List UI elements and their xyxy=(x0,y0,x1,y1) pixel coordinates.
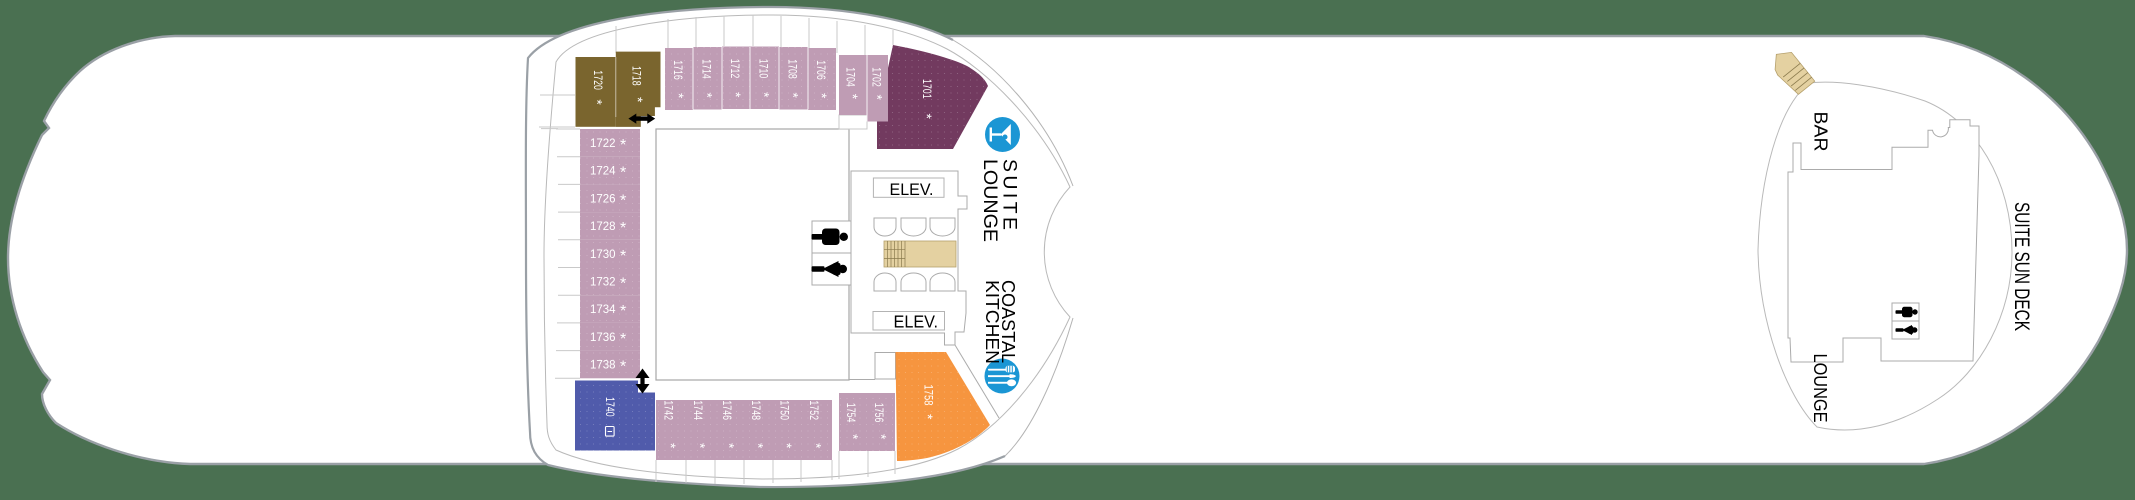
svg-text:1736: 1736 xyxy=(590,332,616,344)
svg-text:ELEV.: ELEV. xyxy=(894,312,939,332)
svg-text:*: * xyxy=(620,303,626,320)
svg-text:1706: 1706 xyxy=(814,60,826,80)
svg-text:*: * xyxy=(700,93,716,99)
svg-text:1742: 1742 xyxy=(661,400,673,420)
svg-text:1746: 1746 xyxy=(720,400,732,420)
svg-text:1710: 1710 xyxy=(756,59,768,79)
svg-text:1750: 1750 xyxy=(777,400,789,420)
svg-text:LOUNGE: LOUNGE xyxy=(1810,354,1830,423)
svg-text:1730: 1730 xyxy=(590,249,616,261)
svg-text:1738: 1738 xyxy=(590,360,616,372)
svg-text:1722: 1722 xyxy=(590,138,616,150)
svg-text:*: * xyxy=(845,94,861,100)
svg-text:*: * xyxy=(620,359,626,376)
svg-text:*: * xyxy=(919,114,935,120)
svg-text:*: * xyxy=(620,331,626,348)
svg-text:1704: 1704 xyxy=(843,67,855,87)
svg-text:1734: 1734 xyxy=(590,304,616,316)
svg-text:*: * xyxy=(786,93,802,99)
svg-text:1701: 1701 xyxy=(920,79,932,99)
svg-text:*: * xyxy=(620,276,626,293)
svg-text:1724: 1724 xyxy=(590,166,616,178)
svg-text:*: * xyxy=(920,414,936,420)
svg-text:*: * xyxy=(779,443,795,449)
svg-text:1756: 1756 xyxy=(872,403,884,423)
svg-text:1726: 1726 xyxy=(590,193,616,205)
svg-text:*: * xyxy=(671,93,687,99)
svg-text:*: * xyxy=(693,443,709,449)
svg-text:1752: 1752 xyxy=(807,400,819,420)
svg-text:1720: 1720 xyxy=(591,70,603,90)
svg-text:ELEV.: ELEV. xyxy=(890,181,934,199)
svg-text:1718: 1718 xyxy=(629,66,641,86)
svg-text:*: * xyxy=(620,248,626,265)
svg-text:1712: 1712 xyxy=(728,59,740,79)
svg-text:1708: 1708 xyxy=(785,59,797,79)
svg-text:1714: 1714 xyxy=(699,59,711,79)
svg-text:1748: 1748 xyxy=(749,400,761,420)
svg-text:*: * xyxy=(757,92,773,98)
svg-text:*: * xyxy=(728,92,744,98)
svg-text:*: * xyxy=(809,443,825,449)
svg-text:*: * xyxy=(722,443,738,449)
svg-text:1716: 1716 xyxy=(671,60,683,80)
svg-text:KITCHEN: KITCHEN xyxy=(982,280,1002,364)
svg-text:1754: 1754 xyxy=(844,403,856,423)
svg-text:*: * xyxy=(620,137,626,154)
svg-text:*: * xyxy=(870,95,886,101)
svg-text:1728: 1728 xyxy=(590,221,616,233)
svg-text:SUITE SUN DECK: SUITE SUN DECK xyxy=(2010,202,2033,331)
svg-text:*: * xyxy=(620,192,626,209)
svg-text:1740: 1740 xyxy=(603,397,615,417)
svg-text:*: * xyxy=(846,434,862,440)
svg-text:1702: 1702 xyxy=(869,67,881,87)
svg-text:LOUNGE: LOUNGE xyxy=(979,159,1001,242)
svg-text:*: * xyxy=(630,97,646,103)
svg-text:1744: 1744 xyxy=(691,400,703,420)
svg-text:*: * xyxy=(751,443,767,449)
svg-text:BAR: BAR xyxy=(1811,112,1831,152)
svg-text:*: * xyxy=(590,99,606,105)
svg-text:1758: 1758 xyxy=(922,385,934,406)
svg-text:*: * xyxy=(620,220,626,237)
svg-text:1732: 1732 xyxy=(590,277,616,289)
svg-text:*: * xyxy=(814,93,830,99)
svg-text:*: * xyxy=(620,165,626,182)
svg-text:*: * xyxy=(663,443,679,449)
svg-text:*: * xyxy=(874,434,890,440)
